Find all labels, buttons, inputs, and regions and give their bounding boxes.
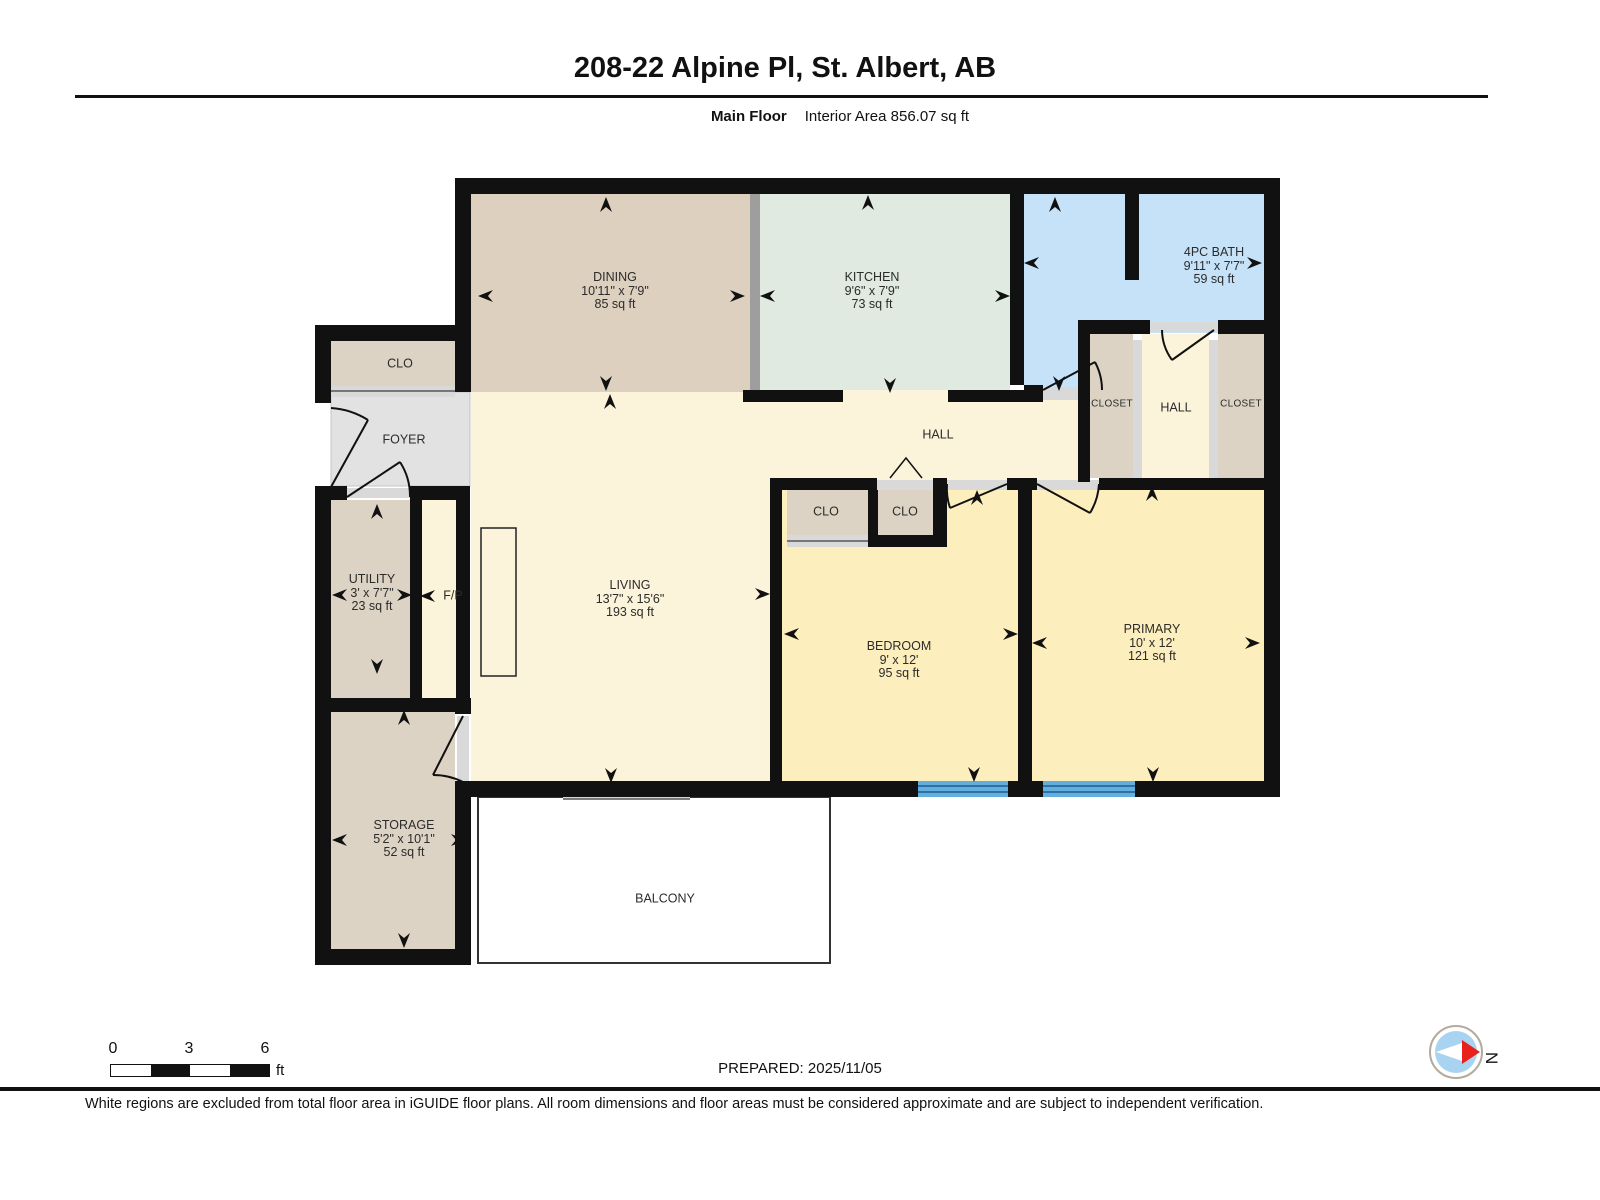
utility-dims: 3' x 7'7"	[349, 586, 396, 600]
prepared-date: PREPARED: 2025/11/05	[0, 1060, 1600, 1077]
primary-label: PRIMARY 10' x 12' 121 sq ft	[1124, 623, 1181, 664]
balcony-label: BALCONY	[635, 892, 695, 906]
bath-dims: 9'11" x 7'7"	[1184, 259, 1245, 273]
closet-right-label: CLOSET	[1220, 397, 1262, 411]
primary-area: 121 sq ft	[1124, 650, 1181, 664]
storage-dims: 5'2" x 10'1"	[373, 832, 435, 846]
bedroom-dims: 9' x 12'	[867, 653, 932, 667]
fireplace-label: F/P	[443, 589, 462, 603]
closet-left-label: CLOSET	[1091, 397, 1133, 411]
utility-name: UTILITY	[349, 573, 396, 587]
dining-label: DINING 10'11" x 7'9" 85 sq ft	[581, 271, 649, 312]
bath-area: 59 sq ft	[1184, 273, 1245, 287]
living-dims: 13'7" x 15'6"	[596, 592, 665, 606]
bedroom-window	[918, 781, 1008, 797]
scale-tick-3: 3	[185, 1040, 194, 1058]
dining-name: DINING	[581, 271, 649, 285]
bath-label: 4PC BATH 9'11" x 7'7" 59 sq ft	[1184, 246, 1245, 287]
bath-name: 4PC BATH	[1184, 246, 1245, 260]
kitchen-area: 73 sq ft	[845, 298, 900, 312]
clo-bed-left-label: CLO	[813, 505, 839, 519]
bedroom-area: 95 sq ft	[867, 667, 932, 681]
storage-name: STORAGE	[373, 819, 435, 833]
fireplace-box	[481, 528, 516, 676]
bath-fill-ext	[1024, 333, 1078, 387]
living-area: 193 sq ft	[596, 606, 665, 620]
clo-bed-right-label: CLO	[892, 505, 918, 519]
dining-kitchen-halfwall	[750, 194, 760, 390]
hall-right-label: HALL	[1160, 401, 1191, 415]
balcony-outline	[478, 797, 830, 963]
hall-label: HALL	[922, 428, 953, 442]
dining-area: 85 sq ft	[581, 298, 649, 312]
living-name: LIVING	[596, 579, 665, 593]
scale-tick-0: 0	[109, 1040, 118, 1058]
bedroom-label: BEDROOM 9' x 12' 95 sq ft	[867, 640, 932, 681]
kitchen-name: KITCHEN	[845, 271, 900, 285]
utility-label: UTILITY 3' x 7'7" 23 sq ft	[349, 573, 396, 614]
utility-area: 23 sq ft	[349, 600, 396, 614]
footer-divider	[0, 1087, 1600, 1091]
disclaimer-text: White regions are excluded from total fl…	[85, 1096, 1263, 1112]
storage-area: 52 sq ft	[373, 846, 435, 860]
floorplan-drawing: N	[0, 0, 1600, 1200]
scale-tick-6: 6	[261, 1040, 270, 1058]
storage-label: STORAGE 5'2" x 10'1" 52 sq ft	[373, 819, 435, 860]
living-label: LIVING 13'7" x 15'6" 193 sq ft	[596, 579, 665, 620]
primary-dims: 10' x 12'	[1124, 636, 1181, 650]
foyer-label: FOYER	[382, 433, 425, 447]
primary-window	[1043, 781, 1135, 797]
kitchen-dims: 9'6" x 7'9"	[845, 284, 900, 298]
primary-name: PRIMARY	[1124, 623, 1181, 637]
bedroom-name: BEDROOM	[867, 640, 932, 654]
floorplan-page: { "header": { "title": "208-22 Alpine Pl…	[0, 0, 1600, 1200]
clo-entry-label: CLO	[387, 357, 413, 371]
kitchen-label: KITCHEN 9'6" x 7'9" 73 sq ft	[845, 271, 900, 312]
dining-dims: 10'11" x 7'9"	[581, 284, 649, 298]
